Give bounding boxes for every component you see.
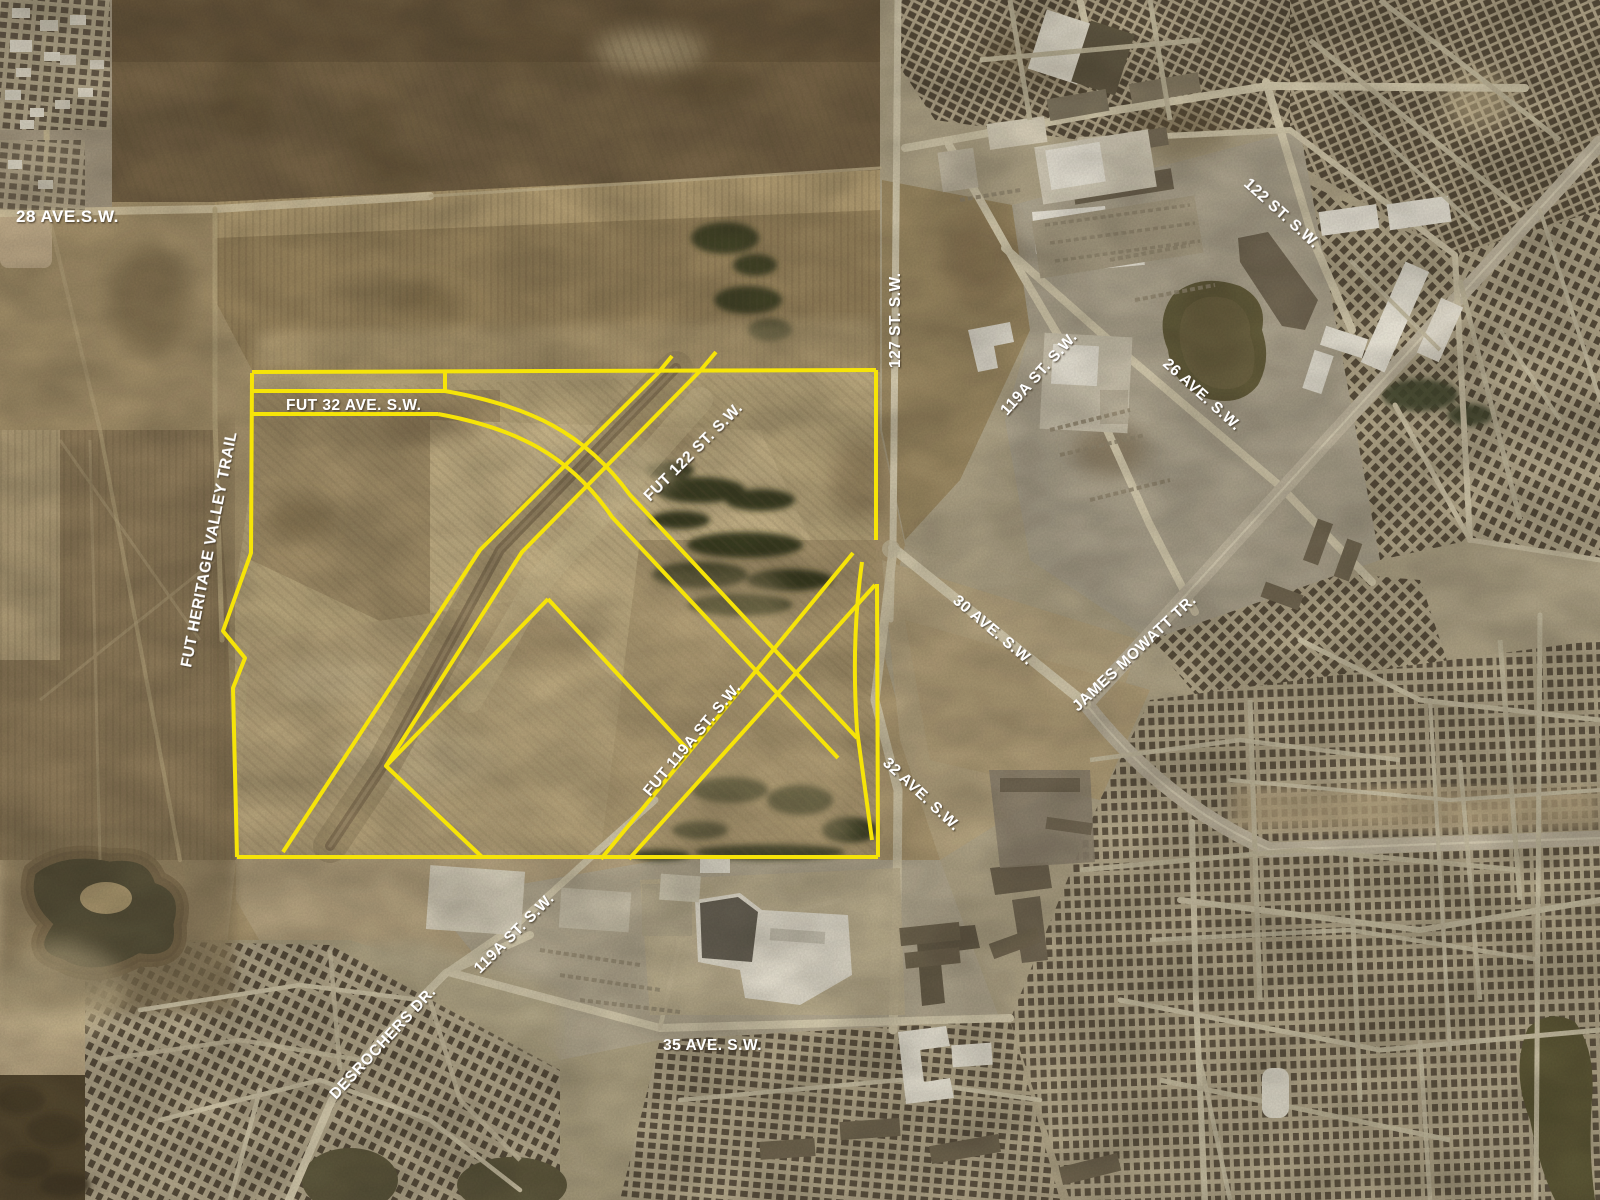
svg-text:FUT 32 AVE. S.W.: FUT 32 AVE. S.W. — [286, 397, 421, 414]
svg-text:28 AVE.S.W.: 28 AVE.S.W. — [16, 207, 119, 226]
svg-text:35 AVE. S.W.: 35 AVE. S.W. — [663, 1037, 762, 1054]
svg-text:127 ST. S.W.: 127 ST. S.W. — [887, 272, 904, 368]
